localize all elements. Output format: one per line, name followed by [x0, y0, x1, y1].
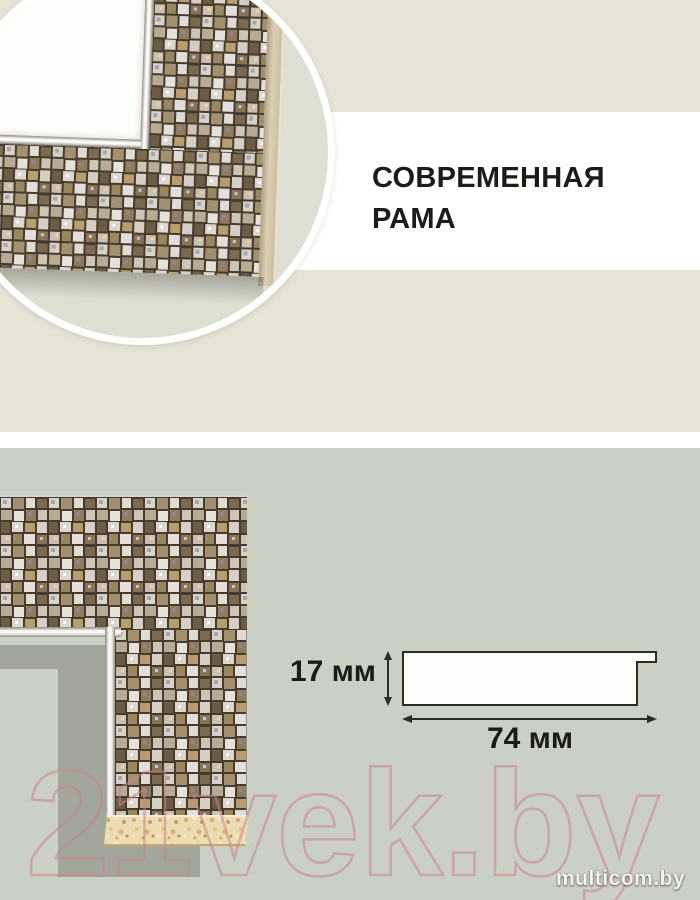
height-dimension-label: 17 мм: [230, 655, 376, 689]
product-image-canvas: СОВРЕМЕННАЯ РАМА: [0, 0, 700, 900]
frame-cast-shadow: [58, 645, 108, 851]
frame-canvas-area: [0, 0, 147, 141]
frame-moulding-vertical-mosaic: [149, 0, 269, 153]
frame-inner-lip-horizontal: [0, 627, 121, 637]
detail-circle-interior: [0, 0, 328, 338]
frame-moulding-horizontal-mosaic: [0, 495, 247, 630]
frame-detail-photo: [0, 0, 328, 338]
frame-inner-lip-vertical: [105, 627, 115, 815]
promo-title-line2: РАМА: [372, 199, 692, 240]
frame-moulding-vertical-mosaic: [115, 629, 247, 815]
bottom-section: 17 мм 74 мм 21vek.by multicom.by: [0, 432, 700, 900]
promo-title-line1: СОВРЕМЕННАЯ: [372, 158, 692, 199]
promo-title: СОВРЕМЕННАЯ РАМА: [372, 158, 692, 240]
chipboard-cross-section: [104, 815, 248, 846]
brand-watermark: multicom.by: [556, 867, 685, 891]
frame-moulding-horizontal-mosaic: [0, 142, 263, 277]
height-dimension-arrow: [384, 651, 392, 706]
profile-outline: [403, 652, 656, 705]
frame-cast-shadow: [58, 844, 200, 877]
frame-corner-detail-circle: [0, 0, 335, 345]
width-dimension-label: 74 мм: [430, 722, 630, 756]
top-section: СОВРЕМЕННАЯ РАМА: [0, 0, 700, 432]
